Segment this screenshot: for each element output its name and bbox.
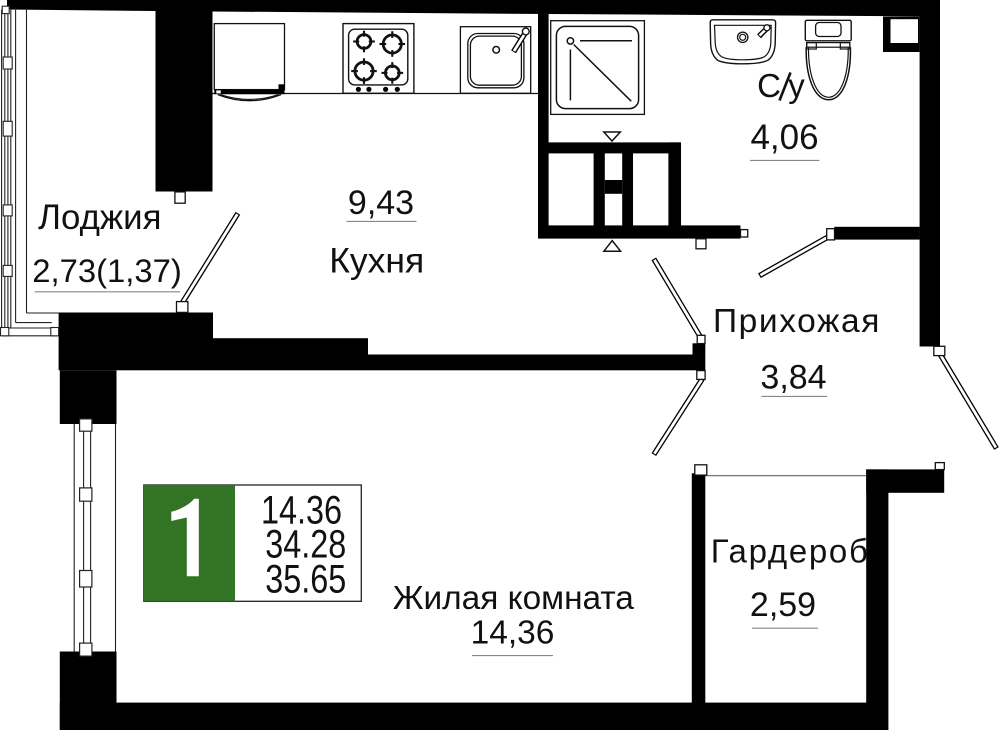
svg-text:2,59: 2,59 [750,586,816,624]
svg-text:у: у [788,67,805,104]
svg-text:Жилая комната: Жилая комната [393,580,635,617]
svg-text:4,06: 4,06 [750,118,818,157]
svg-text:2,73(1,37): 2,73(1,37) [32,252,182,289]
svg-text:35.65: 35.65 [265,556,346,601]
svg-text:Прихожая: Прихожая [713,303,881,340]
svg-text:9,43: 9,43 [348,184,414,222]
svg-text:С: С [757,67,781,104]
svg-text:Гардероб: Гардероб [711,533,870,570]
svg-text:14,36: 14,36 [471,614,555,651]
svg-text:3,84: 3,84 [760,358,826,396]
svg-text:Кухня: Кухня [329,240,424,280]
svg-text:Лоджия: Лоджия [38,198,161,237]
